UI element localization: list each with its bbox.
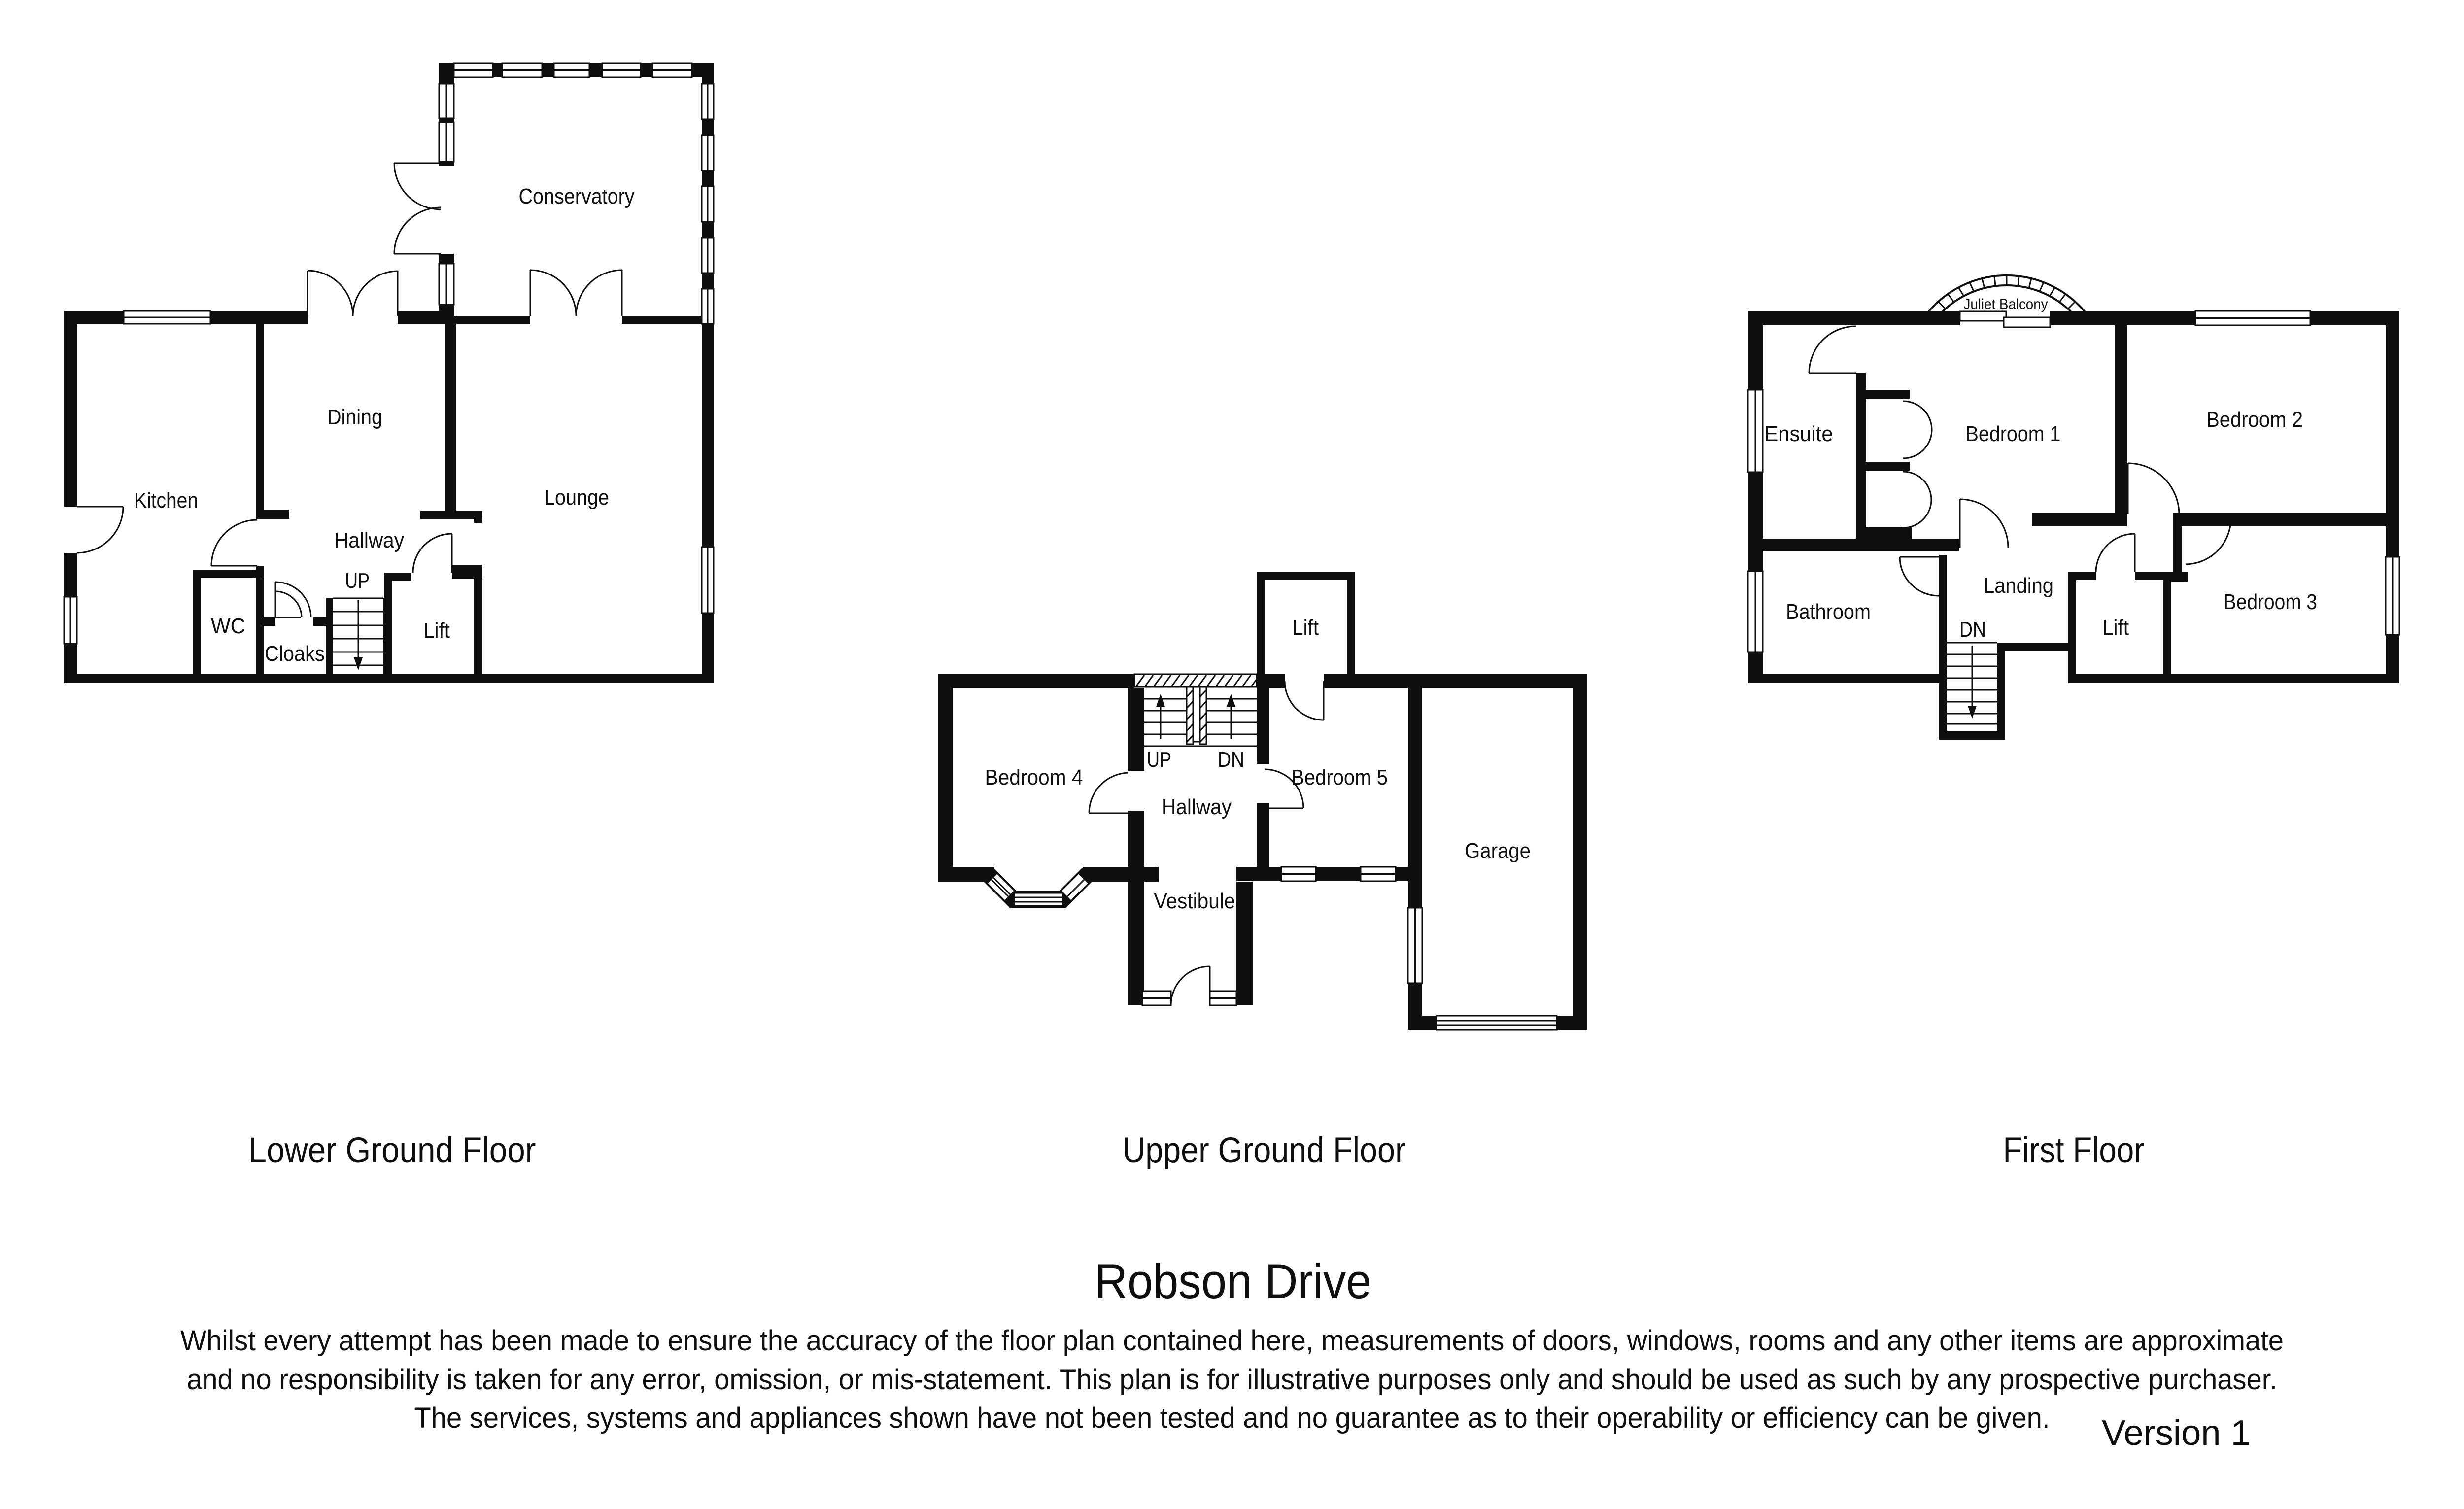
svg-text:Bedroom 5: Bedroom 5	[1291, 765, 1388, 789]
svg-text:Bathroom: Bathroom	[1786, 600, 1871, 624]
svg-text:UP: UP	[345, 569, 370, 593]
svg-text:Juliet Balcony: Juliet Balcony	[1964, 296, 2048, 312]
svg-text:Lower Ground Floor: Lower Ground Floor	[249, 1131, 536, 1170]
svg-text:and no responsibility is taken: and no responsibility is taken for any e…	[187, 1364, 2277, 1396]
svg-text:Dining: Dining	[327, 405, 382, 429]
svg-text:Kitchen: Kitchen	[134, 488, 198, 513]
svg-text:Bedroom 4: Bedroom 4	[985, 765, 1083, 789]
svg-text:Lift: Lift	[1292, 616, 1319, 640]
svg-text:Lounge: Lounge	[544, 485, 609, 510]
svg-text:DN: DN	[1959, 617, 1986, 642]
svg-text:The services, systems and appl: The services, systems and appliances sho…	[414, 1402, 2050, 1434]
svg-text:Cloaks: Cloaks	[265, 642, 325, 666]
svg-text:Upper Ground Floor: Upper Ground Floor	[1123, 1131, 1406, 1170]
svg-text:Bedroom 2: Bedroom 2	[2206, 408, 2303, 432]
svg-text:First Floor: First Floor	[2003, 1131, 2145, 1170]
svg-text:Conservatory: Conservatory	[519, 184, 635, 208]
svg-text:Hallway: Hallway	[1162, 795, 1232, 819]
svg-text:UP: UP	[1147, 748, 1171, 772]
svg-text:DN: DN	[1218, 748, 1244, 772]
svg-text:Lift: Lift	[423, 618, 450, 643]
svg-text:WC: WC	[211, 614, 245, 638]
svg-text:Bedroom 1: Bedroom 1	[1966, 422, 2061, 446]
svg-text:Whilst every attempt has been: Whilst every attempt has been made to en…	[180, 1325, 2284, 1357]
svg-text:Vestibule: Vestibule	[1154, 889, 1235, 913]
svg-text:Version 1: Version 1	[2102, 1413, 2251, 1453]
svg-text:Bedroom 3: Bedroom 3	[2224, 590, 2317, 614]
svg-text:Garage: Garage	[1465, 839, 1531, 863]
svg-text:Landing: Landing	[1984, 574, 2053, 598]
svg-text:Robson Drive: Robson Drive	[1095, 1254, 1371, 1308]
svg-text:Ensuite: Ensuite	[1765, 422, 1833, 446]
svg-text:Hallway: Hallway	[334, 528, 404, 552]
svg-text:Lift: Lift	[2102, 616, 2129, 640]
